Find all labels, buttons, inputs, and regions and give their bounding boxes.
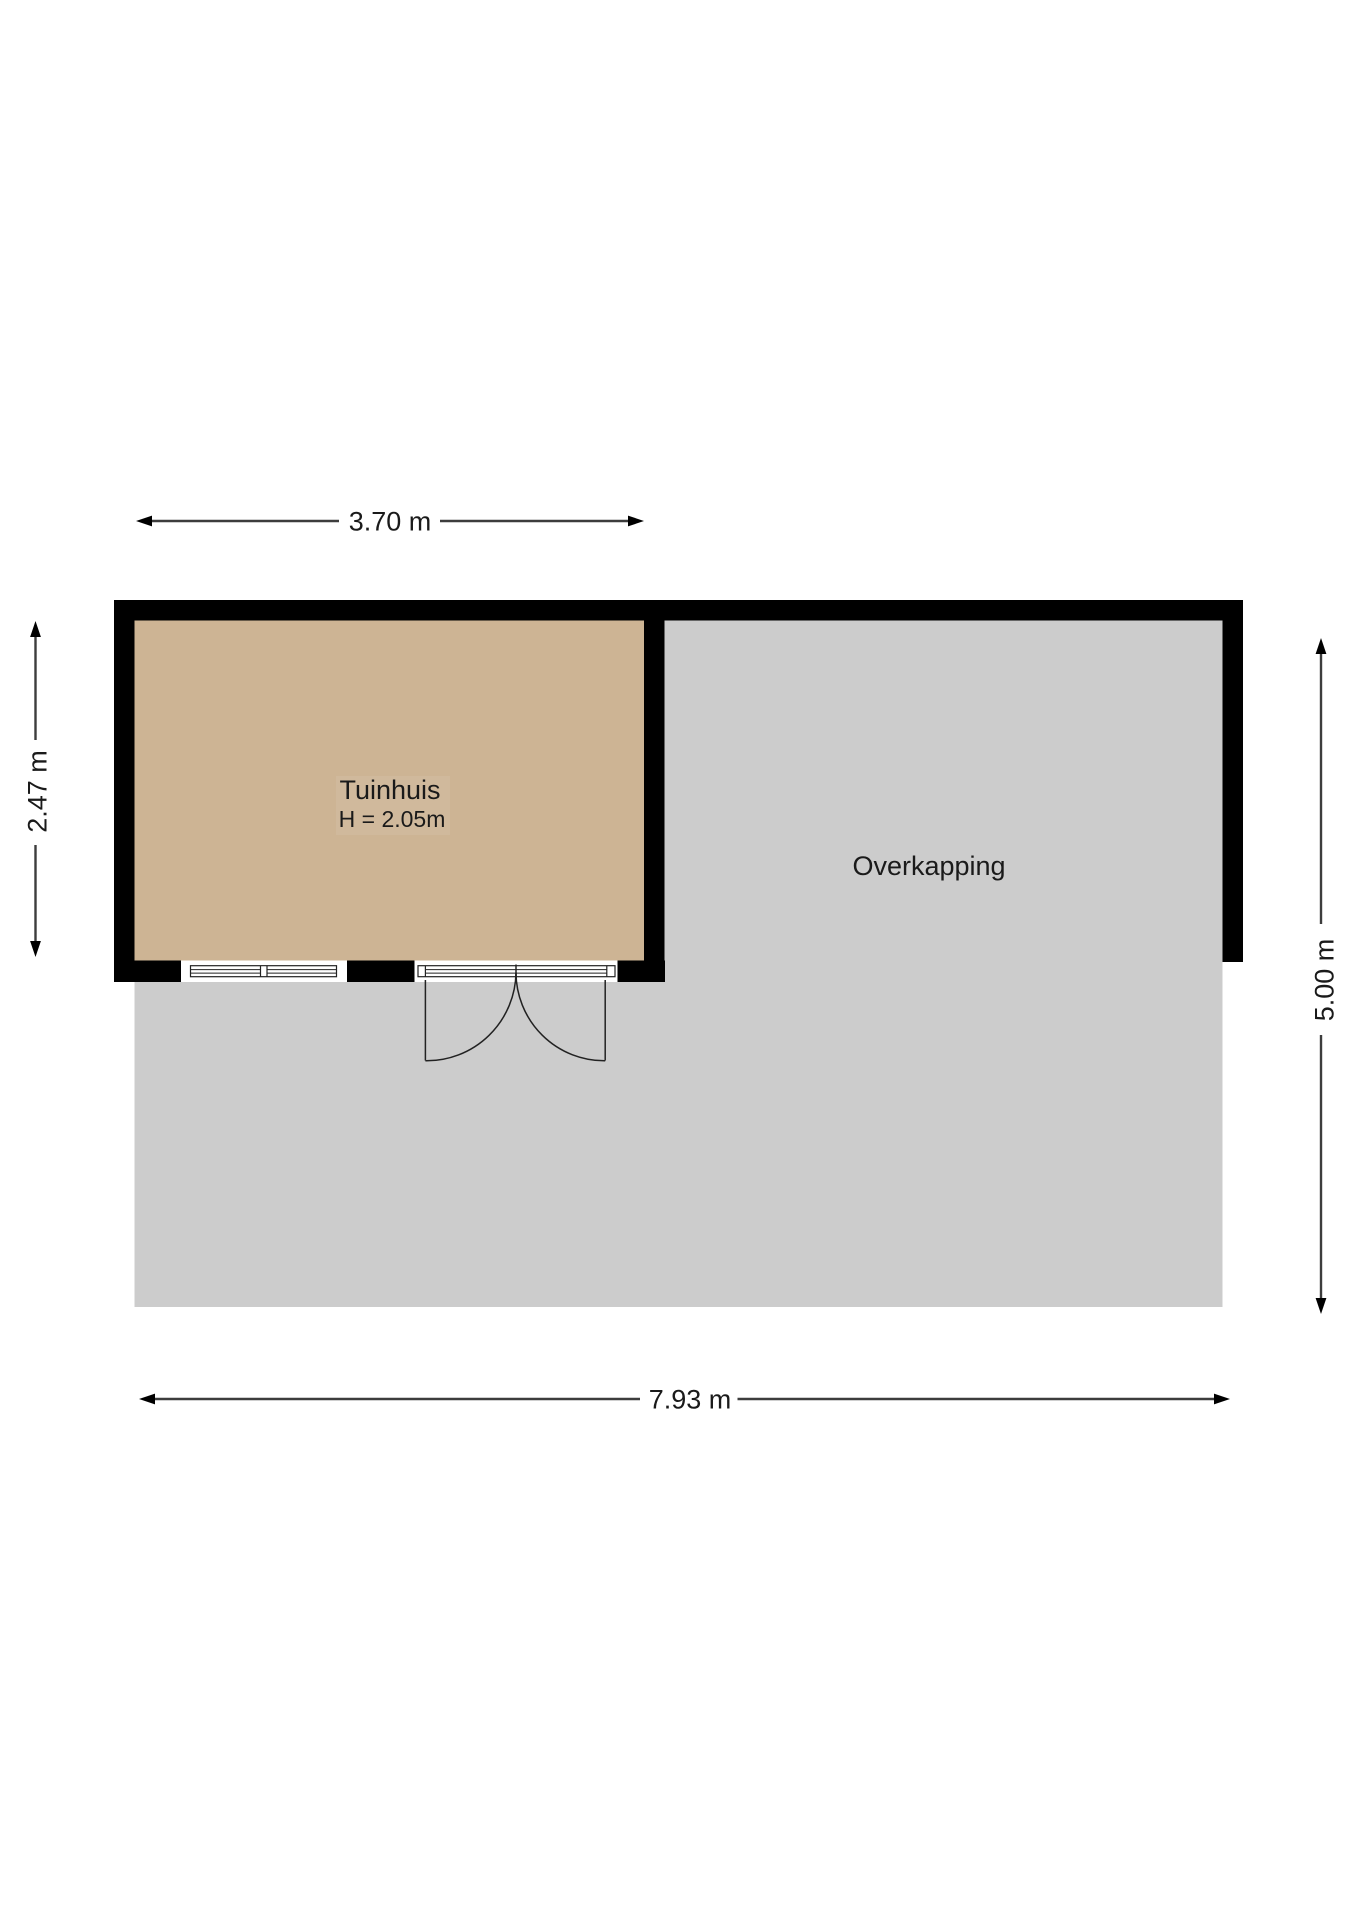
svg-text:3.70 m: 3.70 m [349, 507, 432, 537]
svg-text:7.93 m: 7.93 m [649, 1385, 732, 1415]
svg-text:Overkapping: Overkapping [852, 851, 1005, 881]
svg-text:Tuinhuis: Tuinhuis [339, 775, 440, 805]
svg-text:2.47 m: 2.47 m [23, 750, 53, 833]
svg-text:5.00 m: 5.00 m [1310, 939, 1340, 1022]
svg-text:H = 2.05m: H = 2.05m [339, 806, 446, 832]
